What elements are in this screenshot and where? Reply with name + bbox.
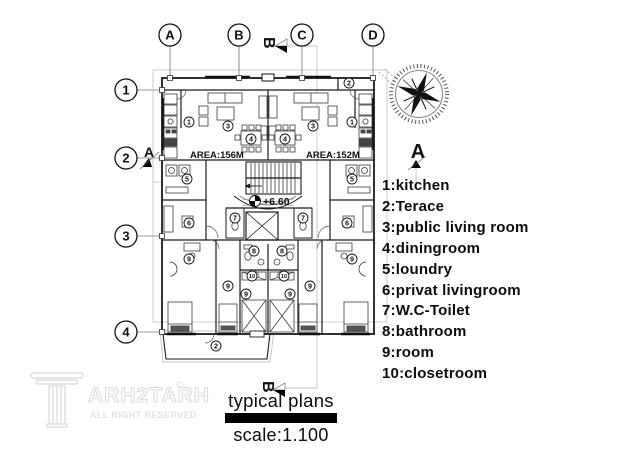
room-marker-number: 10 <box>249 274 255 280</box>
grid-column-markers: ABCD <box>159 24 384 81</box>
grid-row-label: 4 <box>122 325 130 340</box>
entry-step <box>250 331 264 337</box>
scale-label: scale:1.100 <box>225 425 337 445</box>
room-marker-number: 8 <box>252 247 256 256</box>
room-marker-number: 1 <box>187 118 191 127</box>
legend-item: 7:W.C-Toilet <box>382 301 529 322</box>
legend-item: 5:loundry <box>382 260 529 281</box>
section-marker-b-top: B <box>260 37 287 53</box>
grid-column-label: B <box>234 28 243 43</box>
room-marker-number: 9 <box>350 255 354 264</box>
dimension-tick <box>371 76 376 81</box>
grid-row-markers: 1234 <box>115 79 165 343</box>
watermark-logo-icon <box>28 368 88 430</box>
area-label-right: AREA:152M <box>306 150 360 161</box>
svg-text:A: A <box>411 141 425 163</box>
room-marker-number: 7 <box>233 214 237 223</box>
architectural-drawing-sheet: +6.60 AREA:156M AREA:152M ABCD 1234 2113… <box>0 0 640 452</box>
level-label: +6.60 <box>263 196 290 208</box>
room-marker-number: 1 <box>350 118 354 127</box>
watermark-copyright: © <box>176 380 183 391</box>
staircase <box>245 162 301 194</box>
room-marker-number: 10 <box>281 274 287 280</box>
kitchen-left <box>164 94 177 158</box>
room-marker-number: 2 <box>347 79 351 88</box>
dimension-tick <box>237 76 242 81</box>
grid-row-label: 1 <box>122 83 129 98</box>
room-marker-number: 9 <box>308 282 312 291</box>
room-marker-number: 5 <box>185 175 189 184</box>
title-block: typical plans scale:1.100 <box>225 391 337 445</box>
legend-item: 3:public living room <box>382 218 529 239</box>
level-marker: +6.60 <box>250 196 290 209</box>
room-marker-number: 8 <box>280 247 284 256</box>
watermark: ARH2TARH © ALL RIGHT RESERVED <box>28 368 228 438</box>
legend-item: 6:privat livingroom <box>382 281 529 302</box>
legend-item: 9:room <box>382 343 529 364</box>
grid-column-label: C <box>297 28 307 43</box>
room-marker-number: 3 <box>311 122 315 131</box>
legend-item: 10:closetroom <box>382 364 529 385</box>
legend-item: 4:diningroom <box>382 239 529 260</box>
section-marker-a-right: A <box>408 141 426 170</box>
legend-item: 1:kitchen <box>382 176 529 197</box>
drawing-title: typical plans <box>225 391 337 411</box>
legend-item: 8:bathroom <box>382 322 529 343</box>
grid-row-label: 3 <box>122 229 129 244</box>
svg-text:B: B <box>260 37 277 49</box>
grid-column-label: D <box>368 28 377 43</box>
dimension-tick <box>160 156 165 161</box>
dimension-tick <box>168 76 173 81</box>
room-marker-number: 4 <box>249 135 253 144</box>
section-marker-a-left: A <box>140 144 159 169</box>
watermark-brand: ARH2TARH <box>88 384 210 408</box>
dimension-tick <box>160 88 165 93</box>
legend-item: 2:Terace <box>382 197 529 218</box>
room-marker-number: 5 <box>350 175 354 184</box>
room-marker-number: 9 <box>187 255 191 264</box>
room-marker-number: 9 <box>288 290 292 299</box>
kitchen-right <box>359 94 372 158</box>
grid-column-label: A <box>165 28 175 43</box>
room-marker-number: 7 <box>301 214 305 223</box>
room-marker-number: 3 <box>226 122 230 131</box>
compass-rose-icon <box>390 65 449 124</box>
grid-row-label: 2 <box>122 151 129 166</box>
area-label-left: AREA:156M <box>190 150 244 161</box>
room-marker-number: 4 <box>283 135 287 144</box>
room-marker-number: 9 <box>226 282 230 291</box>
elevator-shaft <box>246 212 278 240</box>
room-marker-number: 2 <box>214 342 218 351</box>
room-marker-number: 6 <box>187 219 191 228</box>
watermark-rights: ALL RIGHT RESERVED <box>90 410 197 420</box>
dimension-tick <box>160 234 165 239</box>
legend-list: 1:kitchen2:Terace3:public living room4:d… <box>382 176 529 385</box>
room-marker-number: 6 <box>345 219 349 228</box>
title-divider-bar <box>225 413 337 423</box>
room-marker-number: 9 <box>244 290 248 299</box>
dimension-tick <box>300 76 305 81</box>
dimension-tick <box>160 330 165 335</box>
